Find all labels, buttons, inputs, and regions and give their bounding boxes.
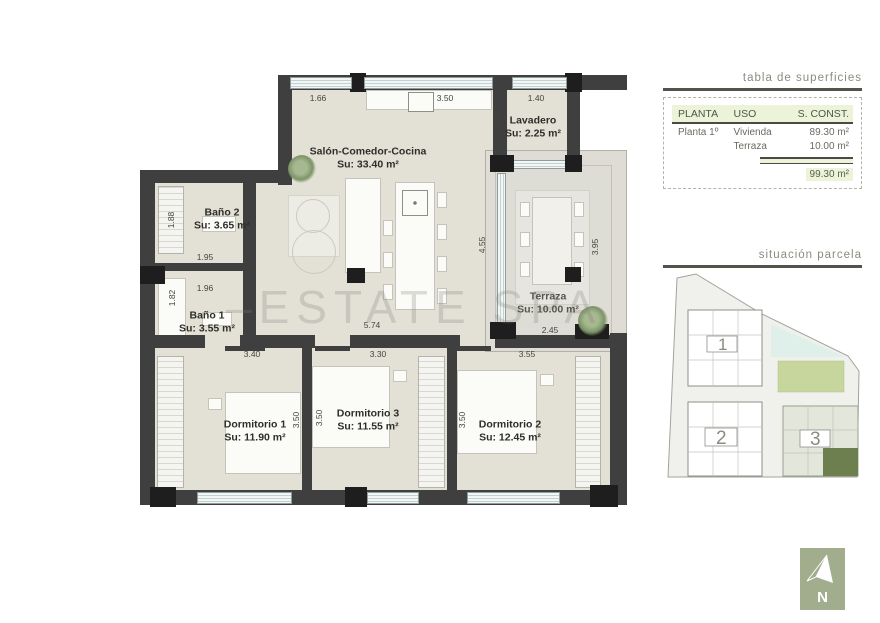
table-row: Terraza 10.00 m² bbox=[672, 141, 853, 152]
room-area: Su: 3.65 m² bbox=[194, 219, 250, 232]
room-label-lavadero: Lavadero Su: 2.25 m² bbox=[505, 114, 561, 139]
column bbox=[590, 485, 618, 507]
laundry-terrace-glass bbox=[507, 160, 567, 169]
dim-label: 3.50 bbox=[437, 93, 454, 103]
pool bbox=[778, 361, 844, 392]
site-title-rule bbox=[663, 265, 862, 268]
terrace-chair bbox=[520, 262, 530, 277]
nightstand bbox=[540, 374, 554, 386]
column bbox=[345, 487, 367, 507]
header-sconst: S. CONST. bbox=[788, 108, 853, 120]
surfaces-table-title: tabla de superficies bbox=[662, 72, 862, 84]
room-name: Lavadero bbox=[505, 114, 561, 127]
dim-label: 3.55 bbox=[519, 349, 536, 359]
room-name: Dormitorio 3 bbox=[337, 407, 399, 420]
dim-label: 1.88 bbox=[166, 212, 176, 229]
room-area: Su: 10.00 m² bbox=[517, 303, 579, 316]
column bbox=[490, 155, 514, 172]
terrace-chair bbox=[520, 232, 530, 247]
table-row: Planta 1º Vivienda 89.30 m² bbox=[672, 127, 853, 138]
building-3: 3 bbox=[783, 406, 858, 476]
window-dorm1 bbox=[197, 492, 292, 504]
total-row: 99.30 m² bbox=[672, 168, 853, 181]
dim-label: 4.55 bbox=[477, 237, 487, 254]
column bbox=[565, 155, 582, 172]
dim-label: 3.50 bbox=[314, 410, 324, 427]
column bbox=[565, 73, 582, 92]
cell-uso: Terraza bbox=[734, 141, 788, 152]
wall-dorm1-dorm3 bbox=[302, 348, 312, 490]
terrace-chair bbox=[574, 202, 584, 217]
room-area: Su: 33.40 m² bbox=[310, 158, 427, 171]
dim-label: 5.74 bbox=[364, 320, 381, 330]
cell-sconst: 10.00 m² bbox=[788, 141, 853, 152]
wall-bath-mid bbox=[155, 263, 256, 271]
dim-label: 1.96 bbox=[197, 283, 214, 293]
room-label-salon: Salón-Comedor-Cocina Su: 33.40 m² bbox=[310, 145, 427, 170]
wall-corridor bbox=[350, 335, 445, 348]
window-dorm3 bbox=[367, 492, 419, 504]
room-name: Terraza bbox=[517, 290, 579, 303]
coffee-table bbox=[292, 230, 336, 274]
cell-sconst: 89.30 m² bbox=[788, 127, 853, 138]
building-2-number: 2 bbox=[716, 428, 727, 449]
room-area: Su: 12.45 m² bbox=[479, 431, 541, 444]
room-name: Dormitorio 2 bbox=[479, 418, 541, 431]
surfaces-title-rule bbox=[663, 88, 862, 91]
dim-label: 2.45 bbox=[542, 325, 559, 335]
wall-right bbox=[610, 333, 627, 505]
dim-label: 1.82 bbox=[167, 290, 177, 307]
dim-label: 1.66 bbox=[310, 93, 327, 103]
dim-label: 3.50 bbox=[457, 412, 467, 429]
terrace-chair bbox=[520, 202, 530, 217]
island-chair bbox=[437, 256, 447, 272]
room-area: Su: 11.55 m² bbox=[337, 420, 399, 433]
outside-mask-topleft bbox=[140, 70, 292, 170]
wall-corridor bbox=[155, 335, 205, 348]
cell-uso: Vivienda bbox=[734, 127, 788, 138]
room-label-bano1: Baño 1 Su: 3.55 m² bbox=[179, 309, 235, 334]
dim-label: 3.50 bbox=[291, 412, 301, 429]
room-area: Su: 2.25 m² bbox=[505, 127, 561, 140]
island-chair bbox=[383, 252, 393, 268]
sofa bbox=[345, 178, 381, 273]
north-label: N bbox=[800, 589, 845, 606]
dim-label: 1.95 bbox=[197, 252, 214, 262]
surfaces-table: PLANTA USO S. CONST. Planta 1º Vivienda … bbox=[663, 97, 862, 189]
column bbox=[140, 266, 165, 284]
site-plan-title: situación parcela bbox=[662, 249, 862, 261]
north-arrow-icon bbox=[800, 548, 845, 593]
window-laundry bbox=[512, 77, 567, 89]
wall-left bbox=[140, 170, 155, 505]
room-name: Dormitorio 1 bbox=[224, 418, 286, 431]
wall-dorm3-dorm2 bbox=[447, 348, 457, 490]
dim-label: 3.30 bbox=[370, 349, 387, 359]
island-chair bbox=[437, 192, 447, 208]
hob bbox=[402, 190, 428, 216]
window-salon-left bbox=[290, 77, 352, 89]
room-label-dorm1: Dormitorio 1 Su: 11.90 m² bbox=[224, 418, 286, 443]
island-chair bbox=[437, 224, 447, 240]
room-area: Su: 3.55 m² bbox=[179, 322, 235, 335]
room-label-dorm3: Dormitorio 3 Su: 11.55 m² bbox=[337, 407, 399, 432]
window-dorm2 bbox=[467, 492, 560, 504]
coffee-table bbox=[296, 199, 330, 233]
building-2: 2 bbox=[688, 402, 762, 476]
dim-label: 1.50 bbox=[491, 112, 501, 129]
room-label-dorm2: Dormitorio 2 Su: 12.45 m² bbox=[479, 418, 541, 443]
building-1: 1 bbox=[688, 310, 762, 386]
room-name: Baño 1 bbox=[179, 309, 235, 322]
site-plan: 1 2 3 bbox=[663, 272, 862, 488]
dim-label: 3.40 bbox=[244, 349, 261, 359]
cell-planta: Planta 1º bbox=[672, 127, 734, 138]
wall-upper-left bbox=[140, 170, 292, 183]
highlighted-unit bbox=[823, 448, 858, 476]
subtotal-rule bbox=[760, 157, 853, 164]
page: { "titles": { "surfaces": "tabla de supe… bbox=[0, 0, 880, 623]
kitchen-sink bbox=[408, 92, 434, 112]
nightstand bbox=[208, 398, 222, 410]
header-uso: USO bbox=[734, 108, 788, 120]
total-value: 99.30 m² bbox=[806, 168, 853, 181]
room-label-terraza: Terraza Su: 10.00 m² bbox=[517, 290, 579, 315]
dim-label: 3.95 bbox=[590, 239, 600, 256]
window-kitchen bbox=[364, 77, 493, 89]
door-dorm2 bbox=[455, 346, 491, 351]
room-label-bano2: Baño 2 Su: 3.65 m² bbox=[194, 206, 250, 231]
wardrobe bbox=[575, 356, 601, 488]
terrace-chair bbox=[574, 232, 584, 247]
north-compass: N bbox=[800, 548, 845, 610]
column bbox=[150, 487, 176, 507]
island-chair bbox=[383, 220, 393, 236]
floor-plan: –ESTATE SPA Salón-Comedor-Cocina Su: 33.… bbox=[140, 70, 627, 512]
dim-label: 1.40 bbox=[528, 93, 545, 103]
room-name: Salón-Comedor-Cocina bbox=[310, 145, 427, 158]
surfaces-table-header: PLANTA USO S. CONST. bbox=[672, 105, 853, 124]
room-name: Baño 2 bbox=[194, 206, 250, 219]
cell-planta bbox=[672, 141, 734, 152]
building-3-number: 3 bbox=[810, 429, 821, 450]
nightstand bbox=[393, 370, 407, 382]
wardrobe bbox=[418, 356, 445, 488]
room-area: Su: 11.90 m² bbox=[224, 431, 286, 444]
building-1-number: 1 bbox=[718, 335, 727, 354]
door-dorm3 bbox=[315, 346, 350, 351]
header-planta: PLANTA bbox=[672, 108, 734, 120]
wardrobe bbox=[157, 356, 184, 488]
